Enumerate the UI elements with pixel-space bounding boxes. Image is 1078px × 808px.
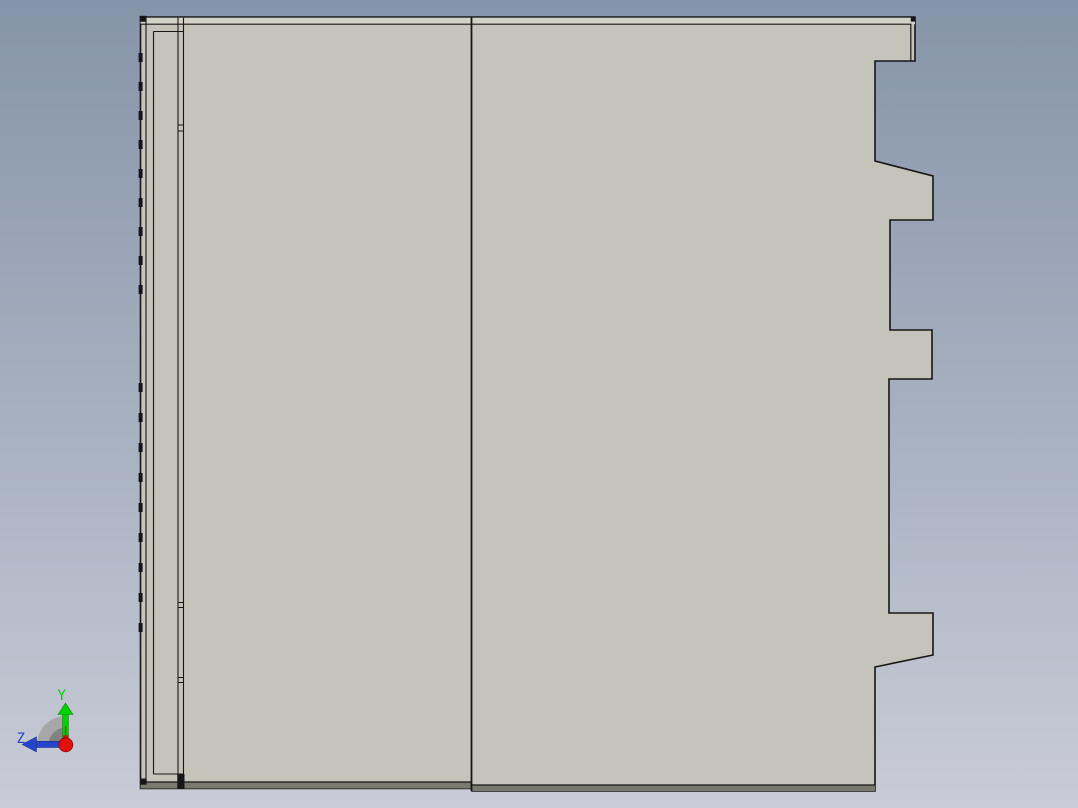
left-edge-tab-marks-3 bbox=[139, 111, 143, 120]
left-edge-tab-marks-18 bbox=[139, 623, 143, 632]
left-edge-tab-marks-15 bbox=[139, 533, 143, 542]
top-chamfer-band bbox=[141, 18, 916, 24]
left-edge-tab-marks-8 bbox=[139, 256, 143, 265]
left-edge-tab-marks-12 bbox=[139, 443, 143, 452]
left-edge-tab-marks-9 bbox=[139, 285, 143, 294]
left-edge-tab-marks-6 bbox=[139, 198, 143, 207]
left-edge-tab-marks-5 bbox=[139, 169, 143, 178]
left-edge-tab-marks-13 bbox=[139, 473, 143, 482]
left-edge-tab-marks-16 bbox=[139, 563, 143, 572]
left-edge-tab-marks-7 bbox=[139, 227, 143, 236]
corner-marker-bottom-left bbox=[140, 779, 147, 785]
left-edge-tab-marks-17 bbox=[139, 593, 143, 602]
left-edge-tab-marks-4 bbox=[139, 140, 143, 149]
corner-marker-top-right bbox=[911, 17, 916, 22]
left-edge-tab-marks-11 bbox=[139, 413, 143, 422]
left-edge-tab-marks-1 bbox=[139, 53, 143, 62]
cad-canvas[interactable]: Y Z bbox=[0, 0, 1078, 808]
corner-marker-top-left bbox=[140, 16, 147, 22]
part-side-view[interactable] bbox=[139, 16, 933, 791]
z-axis-label: Z bbox=[17, 731, 25, 747]
y-axis-label: Y bbox=[58, 688, 67, 704]
left-edge-tab-marks-14 bbox=[139, 503, 143, 512]
orientation-triad: Y Z bbox=[17, 688, 74, 752]
cad-viewport[interactable]: Y Z bbox=[0, 0, 1078, 808]
part-body-outline bbox=[141, 17, 934, 791]
bottom-chamfer-band-left bbox=[141, 782, 473, 789]
left-edge-tab-marks-2 bbox=[139, 82, 143, 91]
flange-bottom-fill bbox=[177, 774, 184, 789]
bottom-chamfer-band-right bbox=[472, 785, 875, 791]
left-edge-tab-marks-10 bbox=[139, 383, 143, 392]
